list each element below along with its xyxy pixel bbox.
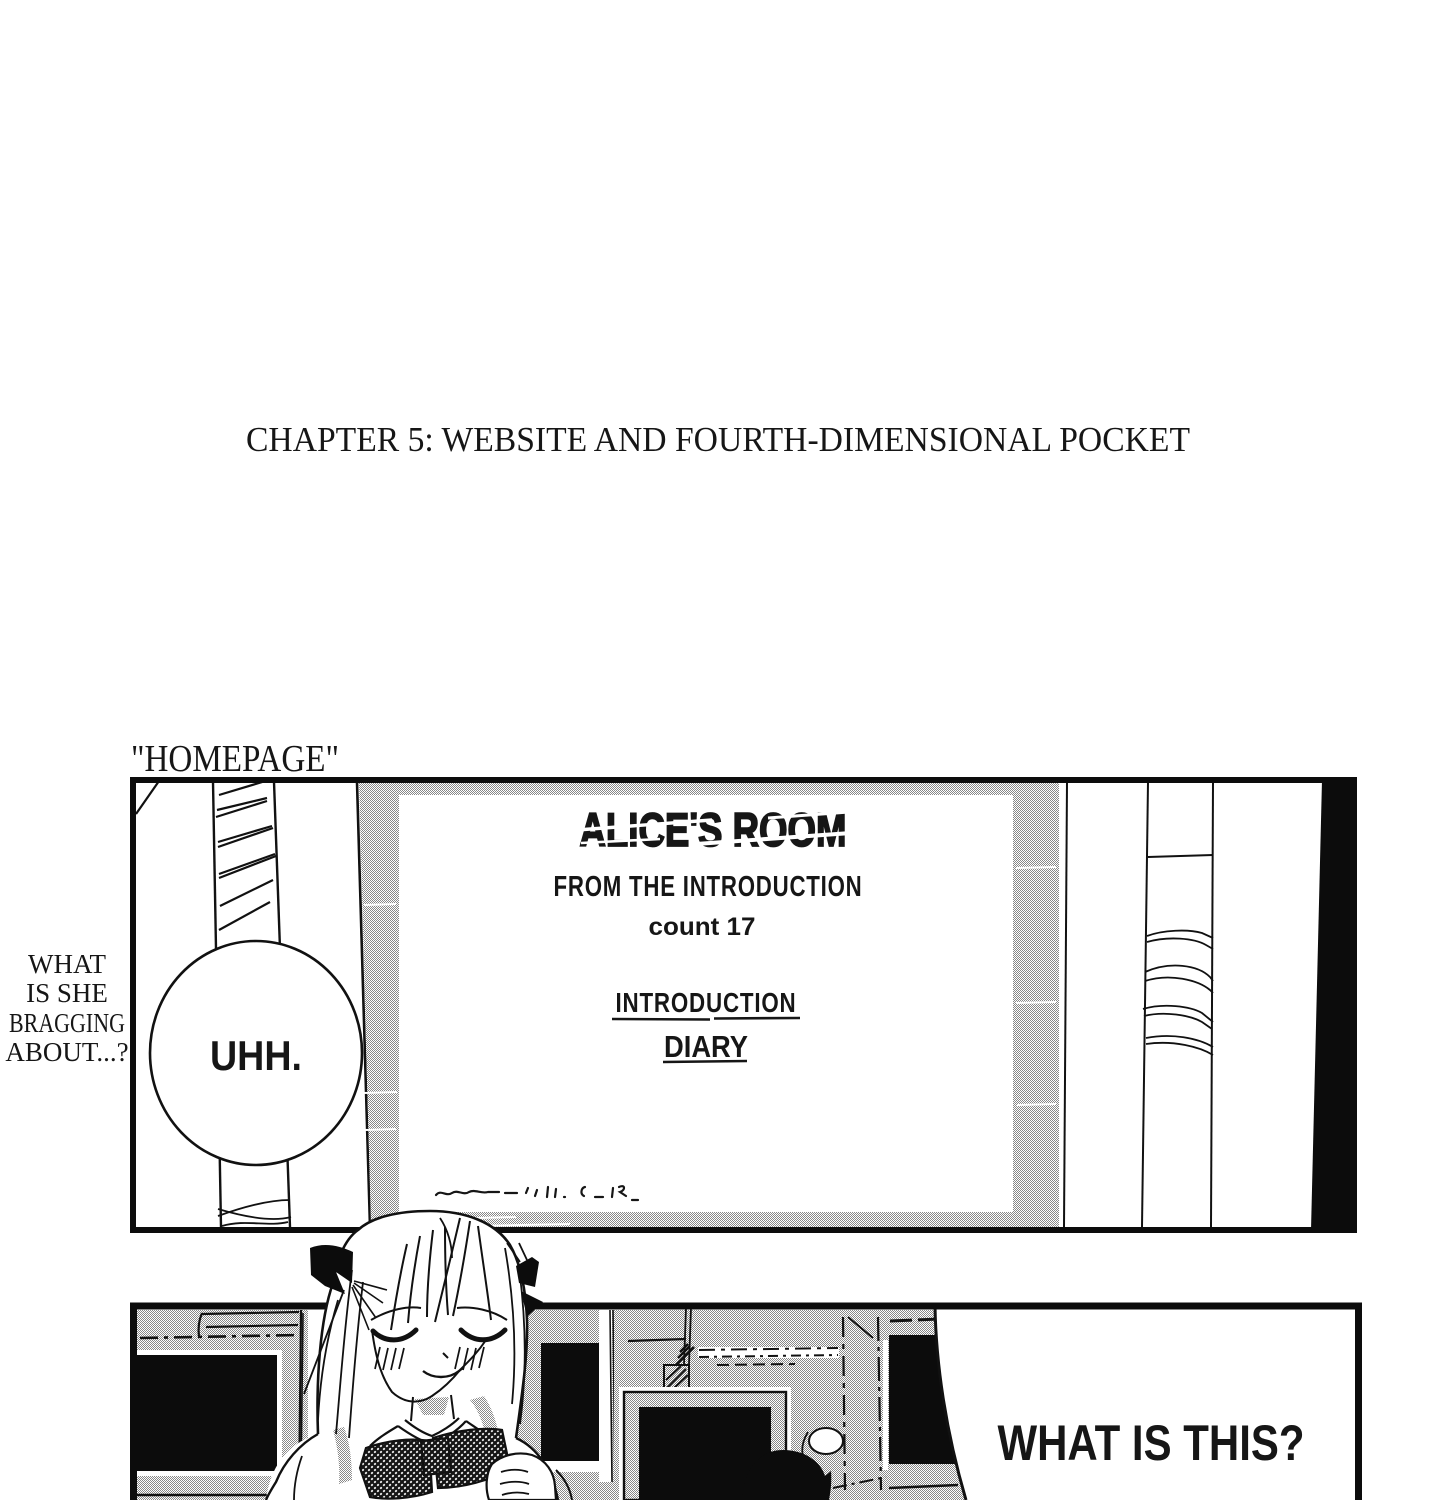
svg-text:CHAPTER 5: WEBSITE AND FOURTH-: CHAPTER 5: WEBSITE AND FOURTH-DIMENSIONA… <box>246 420 1190 459</box>
svg-text:INTRODUCTION: INTRODUCTION <box>616 987 797 1018</box>
svg-text:WHAT: WHAT <box>28 949 106 979</box>
svg-text:DIARY: DIARY <box>664 1029 748 1064</box>
svg-text:ABOUT...?: ABOUT...? <box>5 1037 128 1067</box>
svg-text:UHH.: UHH. <box>210 1032 302 1079</box>
svg-text:FROM THE INTRODUCTION: FROM THE INTRODUCTION <box>554 871 863 903</box>
svg-text:ALICE'S ROOM: ALICE'S ROOM <box>580 803 847 856</box>
svg-text:BRAGGING: BRAGGING <box>9 1008 125 1038</box>
svg-text:count 17: count 17 <box>649 913 756 941</box>
svg-text:WHAT IS THIS?: WHAT IS THIS? <box>998 1415 1305 1471</box>
svg-text:IS SHE: IS SHE <box>26 978 108 1008</box>
svg-text:"HOMEPAGE": "HOMEPAGE" <box>131 738 339 780</box>
